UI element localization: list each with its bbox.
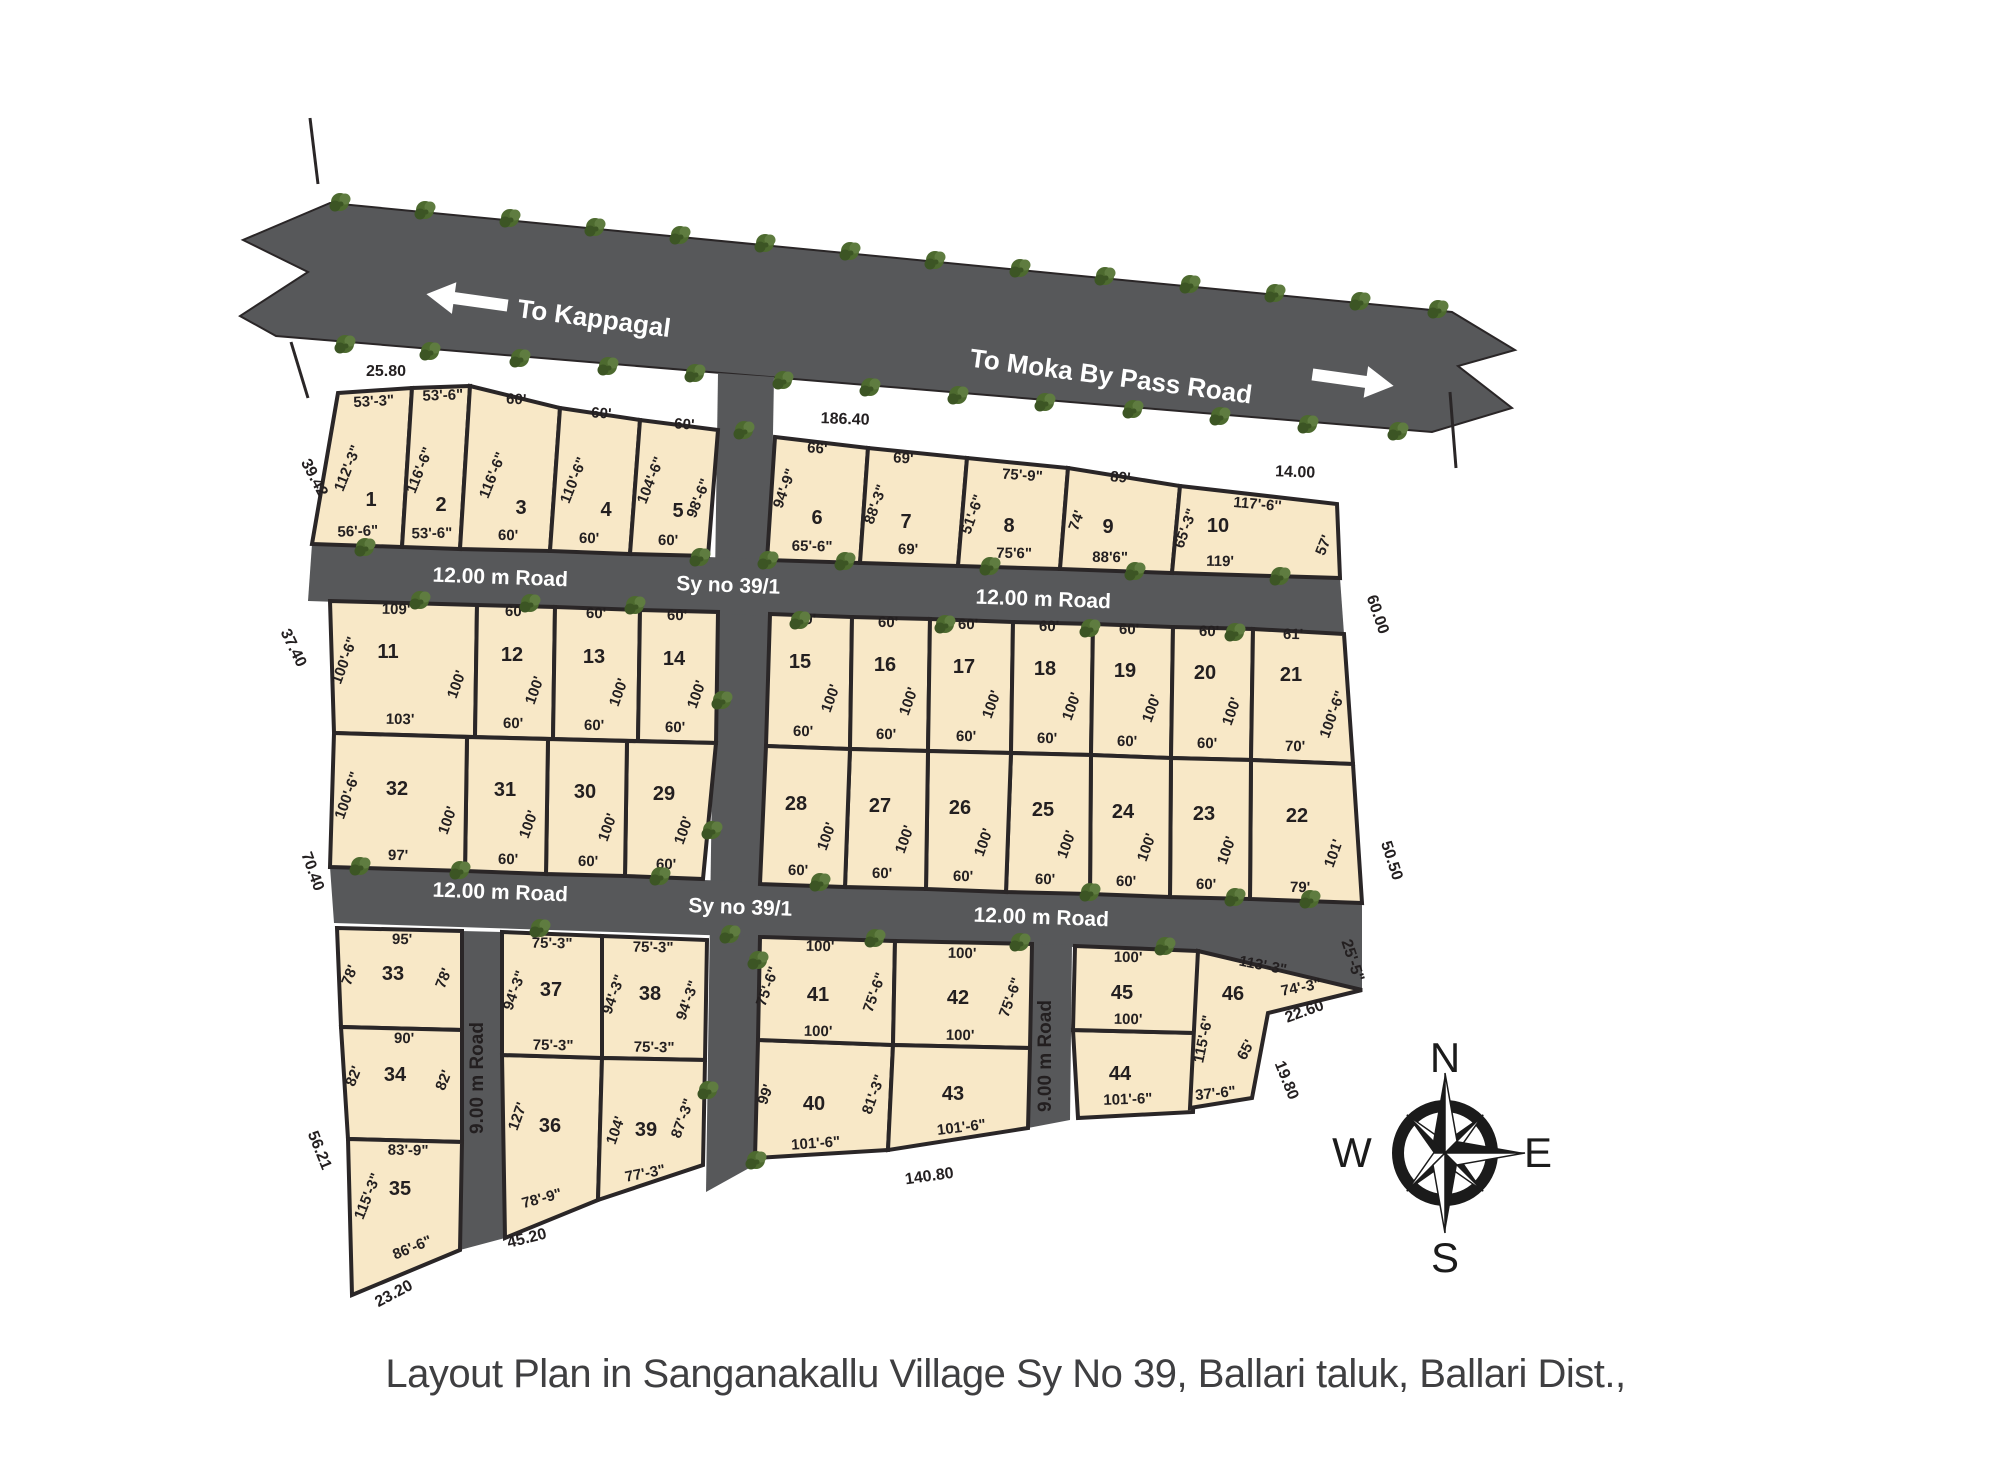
plot-6-dim: 65'-6" [792, 538, 833, 556]
plot-27-dim: 60' [872, 865, 893, 882]
plot-37-number: 37 [540, 979, 562, 1001]
plot-41-dim: 100' [806, 938, 835, 955]
plot-12-dim: 60' [503, 715, 524, 732]
plot-12-number: 12 [501, 644, 523, 666]
plot-17-number: 17 [953, 656, 975, 678]
plot-8-number: 8 [1003, 515, 1014, 537]
plot-41-dim: 100' [804, 1023, 833, 1040]
plot-22-number: 22 [1286, 805, 1308, 827]
plot-4-dim: 60' [579, 530, 600, 547]
plot-30-number: 30 [574, 781, 596, 803]
plot-21-dim: 61' [1283, 626, 1304, 643]
road-label: Sy no 39/1 [688, 894, 793, 921]
plot-11-dim: 109' [382, 601, 411, 618]
plot-42-number: 42 [947, 987, 969, 1009]
plot-23-number: 23 [1193, 803, 1215, 825]
plot-45-dim: 100' [1114, 949, 1143, 966]
plot-38-dim: 75'-3" [633, 939, 674, 957]
plot-37-dim: 75'-3" [533, 1037, 574, 1055]
plot-23-dim: 60' [1196, 876, 1217, 893]
outer-dimension: 19.80 [1271, 1059, 1302, 1103]
plot-43-number: 43 [942, 1083, 964, 1105]
plot-14-dim: 60' [667, 607, 688, 624]
plot-8-dim: 75'6" [996, 545, 1032, 563]
plot-38-dim: 75'-3" [634, 1039, 675, 1057]
plot-5-number: 5 [672, 500, 683, 522]
outer-dimension: 186.40 [820, 410, 870, 429]
plot-7-dim: 69' [898, 541, 919, 558]
plot-36-number: 36 [539, 1115, 561, 1137]
outer-dimension: 37.40 [277, 626, 310, 670]
plot-17-dim: 60' [956, 728, 977, 745]
plot-21-dim: 70' [1285, 738, 1306, 755]
plot-10-dim: 119' [1206, 553, 1234, 570]
plot-42-dim: 100' [946, 1027, 975, 1044]
plot-4-dim: 60' [591, 404, 612, 422]
plot-32-dim: 97' [388, 847, 409, 864]
dim-label: N [0, 0, 15, 9]
compass-rose [1398, 1073, 1525, 1233]
plot-27-number: 27 [869, 795, 891, 817]
road-label: 12.00 m Road [973, 904, 1109, 932]
plot-14-dim: 60' [665, 719, 686, 736]
plot-33-dim: 95' [392, 931, 413, 948]
plot-44-number: 44 [1109, 1063, 1132, 1085]
plot-6-number: 6 [811, 507, 822, 529]
plot-45-number: 45 [1111, 982, 1133, 1004]
plot-35-dim: 83'-9" [388, 1142, 429, 1160]
plot-7-dim: 69' [893, 449, 914, 467]
plot-5-dim: 60' [658, 532, 679, 549]
road-label: 12.00 m Road [975, 586, 1111, 614]
plot-9-dim: 88'6" [1092, 549, 1128, 567]
plot-45-dim: 100' [1114, 1011, 1143, 1028]
plot-8-dim: 75'-9" [1001, 466, 1043, 486]
plot-36 [502, 1055, 602, 1238]
plot-16-number: 16 [874, 654, 896, 676]
road-label: 12.00 m Road [432, 564, 568, 592]
plot-46-number: 46 [1222, 983, 1244, 1005]
plot-29-number: 29 [653, 783, 675, 805]
outer-dimension: 56.21 [304, 1129, 335, 1173]
plot-9-dim: 89' [1110, 468, 1132, 487]
plot-20-dim: 60' [1199, 623, 1220, 640]
plot-11-number: 11 [377, 641, 398, 663]
plot-34-number: 34 [384, 1064, 407, 1086]
plot-16-dim: 60' [878, 614, 899, 631]
plot-1-number: 1 [365, 489, 376, 511]
plot-31-number: 31 [494, 779, 516, 801]
plot-18-dim: 60' [1039, 618, 1060, 635]
road-label: 12.00 m Road [432, 879, 568, 907]
boundary-tick [291, 342, 308, 398]
plot-19-dim: 60' [1117, 733, 1138, 750]
plot-1-dim: 56'-6" [337, 522, 378, 540]
plot-5-dim: 60' [674, 415, 695, 433]
outer-dimension: 140.80 [904, 1165, 955, 1189]
plot-17-dim: 60' [958, 616, 979, 633]
outer-dimension: 60.00 [1363, 593, 1392, 636]
plot-13-dim: 60' [584, 717, 605, 734]
outer-dimension: 25.80 [366, 363, 406, 380]
plot-35-number: 35 [389, 1178, 411, 1200]
road-label: 9.00 m Road [467, 1022, 488, 1134]
layout-plan-stage: 153'-3"112'-3"56'-6"253'-6"116'-6"53'-6"… [0, 0, 2011, 1463]
outer-dimension: 14.00 [1275, 463, 1316, 481]
plot-42-dim: 100' [948, 945, 977, 962]
plot-25-number: 25 [1032, 799, 1054, 821]
plot-40-dim: 101'-6" [791, 1133, 841, 1153]
plot-25-dim: 60' [1035, 871, 1056, 888]
plot-15-dim: 60' [793, 723, 814, 740]
road-label: 9.00 m Road [1035, 1000, 1056, 1112]
plot-33-number: 33 [382, 963, 404, 985]
plot-1-dim: 53'-3" [353, 392, 395, 411]
layout-plan-svg: 153'-3"112'-3"56'-6"253'-6"116'-6"53'-6"… [0, 0, 2011, 1463]
plot-15-number: 15 [789, 651, 811, 673]
boundary-tick [310, 118, 318, 184]
plot-26-dim: 60' [953, 868, 974, 885]
plot-7-number: 7 [900, 511, 911, 533]
plot-9-number: 9 [1102, 516, 1113, 538]
plot-3-dim: 60' [498, 527, 519, 544]
outer-dimension: 70.40 [297, 850, 327, 894]
compass-w: W [1332, 1129, 1372, 1176]
plot-34-dim: 90' [394, 1030, 415, 1047]
plot-37-dim: 75'-3" [532, 935, 573, 953]
plot-18-dim: 60' [1037, 730, 1058, 747]
plot-6-dim: 66' [807, 439, 828, 457]
plot-19-number: 19 [1114, 660, 1136, 682]
plot-19-dim: 60' [1119, 621, 1140, 638]
plot-38-number: 38 [639, 983, 661, 1005]
plot-40-number: 40 [803, 1093, 825, 1115]
plot-28-dim: 60' [788, 862, 809, 879]
plot-28-number: 28 [785, 793, 807, 815]
plot-41-number: 41 [807, 984, 829, 1006]
plot-30-dim: 60' [578, 853, 599, 870]
plot-31-dim: 60' [498, 851, 519, 868]
plot-24-dim: 60' [1116, 873, 1137, 890]
plot-14-number: 14 [663, 648, 686, 670]
plan-title: Layout Plan in Sanganakallu Village Sy N… [0, 1352, 2011, 1397]
plot-26-number: 26 [949, 797, 971, 819]
plot-21-number: 21 [1280, 664, 1302, 686]
plot-20-number: 20 [1194, 662, 1216, 684]
plot-3-number: 3 [515, 497, 526, 519]
plot-24-number: 24 [1112, 801, 1135, 823]
plot-2-dim: 53'-6" [422, 386, 463, 404]
plot-16-dim: 60' [876, 726, 897, 743]
plot-18-number: 18 [1034, 658, 1056, 680]
plot-13-dim: 60' [586, 605, 607, 622]
plot-44-dim: 101'-6" [1103, 1090, 1153, 1109]
plot-20-dim: 60' [1197, 735, 1218, 752]
plot-11-dim: 103' [386, 711, 415, 728]
compass-e: E [1524, 1129, 1552, 1176]
compass-n: N [1430, 1034, 1460, 1081]
plot-3-dim: 60' [506, 390, 527, 408]
outer-dimension: 50.50 [1377, 839, 1406, 882]
plot-32-number: 32 [386, 778, 408, 800]
road-label: Sy no 39/1 [676, 572, 781, 599]
plot-39-number: 39 [635, 1119, 657, 1141]
plot-10-number: 10 [1207, 515, 1229, 537]
compass-s: S [1431, 1234, 1459, 1281]
plot-2-number: 2 [435, 494, 446, 516]
plot-13-number: 13 [583, 646, 605, 668]
plot-4-number: 4 [600, 499, 612, 521]
plot-2-dim: 53'-6" [411, 525, 452, 543]
